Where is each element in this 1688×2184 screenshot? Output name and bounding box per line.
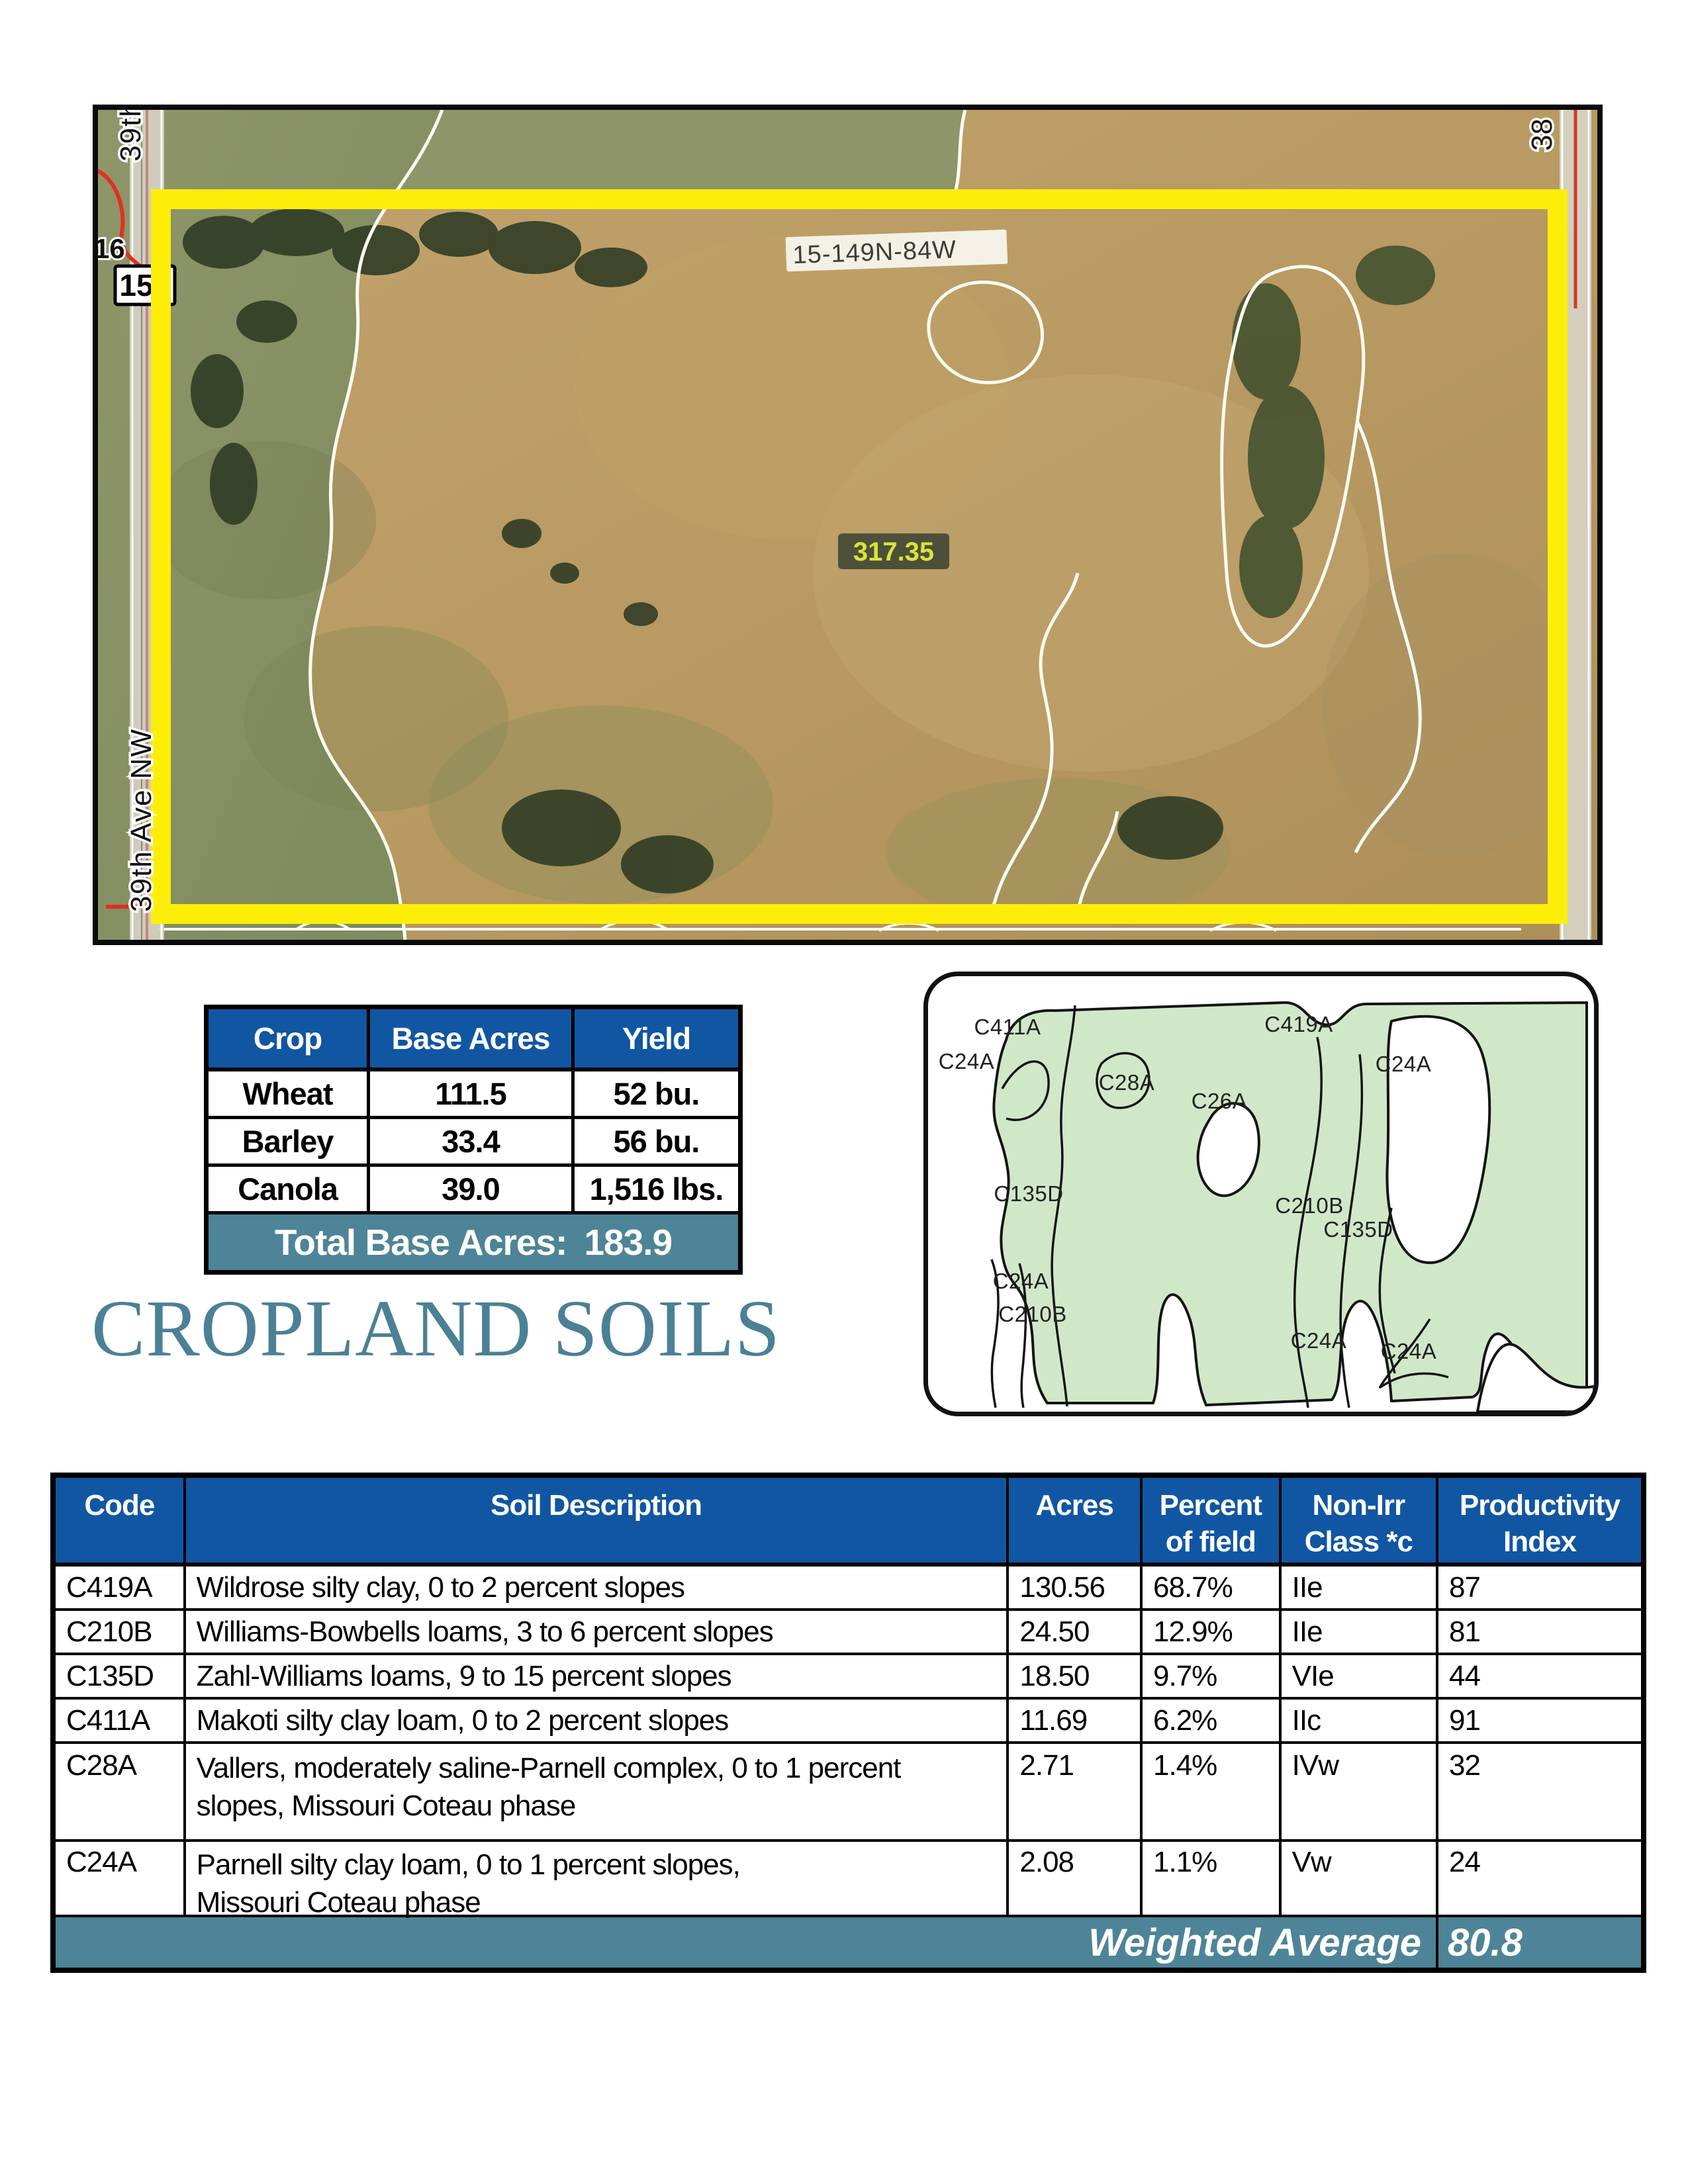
soil-percent: 6.2%: [1143, 1700, 1282, 1741]
acreage-label: 317.35: [853, 537, 934, 567]
soil-code-label: C26A: [1192, 1089, 1248, 1113]
road-number-label: 16: [98, 233, 125, 264]
soil-code: C28A: [56, 1744, 186, 1839]
soil-index: 91: [1438, 1700, 1641, 1741]
soil-class: IIe: [1282, 1611, 1438, 1653]
soils-table: Code Soil Description Acres Percentof fi…: [50, 1473, 1646, 1973]
soil-index: 87: [1438, 1567, 1641, 1608]
total-base-acres-value: 183.9: [584, 1221, 672, 1263]
soil-code-label: C135D: [994, 1181, 1063, 1206]
soil-description: Makoti silty clay loam, 0 to 2 percent s…: [186, 1700, 1009, 1741]
page-title: CROPLAND SOILS: [91, 1283, 780, 1375]
acres-header: Acres: [1009, 1478, 1143, 1563]
crop-name: Canola: [209, 1167, 370, 1211]
soil-index: 81: [1438, 1611, 1641, 1653]
soil-description: Zahl-Williams loams, 9 to 15 percent slo…: [186, 1655, 1009, 1697]
soil-row: C419A Wildrose silty clay, 0 to 2 percen…: [56, 1567, 1641, 1611]
description-header: Soil Description: [186, 1478, 1009, 1563]
soil-code: C419A: [56, 1567, 186, 1608]
crop-table-header: Crop Base Acres Yield: [209, 1009, 738, 1071]
soil-code: C135D: [56, 1655, 186, 1697]
soil-code: C210B: [56, 1611, 186, 1653]
township-label: 15-149N-84W: [792, 236, 957, 269]
aerial-map: 15 16 39th Ave NW 39th 38 15-149N-84W 31…: [93, 105, 1603, 945]
soil-percent: 1.4%: [1143, 1744, 1282, 1839]
soil-code-label: C28A: [1099, 1070, 1155, 1095]
soil-description: Vallers, moderately saline-Parnell compl…: [186, 1744, 1009, 1839]
productivity-header: ProductivityIndex: [1438, 1478, 1641, 1563]
soil-percent: 1.1%: [1143, 1842, 1282, 1915]
total-base-acres-label: Total Base Acres:: [275, 1221, 567, 1263]
soil-index: 44: [1438, 1655, 1641, 1697]
crop-yield: 52 bu.: [575, 1071, 738, 1116]
highway-shield-label: 15: [119, 268, 153, 302]
soil-row: C210B Williams-Bowbells loams, 3 to 6 pe…: [56, 1611, 1641, 1655]
base-acres-header: Base Acres: [370, 1009, 575, 1068]
crop-name: Barley: [209, 1119, 370, 1163]
soil-code-label: C135D: [1323, 1217, 1393, 1242]
soil-code-label: C24A: [1291, 1328, 1347, 1353]
aerial-map-image: 15 16 39th Ave NW 39th 38 15-149N-84W 31…: [98, 110, 1597, 940]
soil-acres: 11.69: [1009, 1700, 1143, 1741]
soil-map: C411A C24A C28A C419A C26A C24A C135D C2…: [923, 972, 1599, 1416]
soil-map-image: C411A C24A C28A C419A C26A C24A C135D C2…: [928, 976, 1594, 1412]
crop-base-acres: 111.5: [370, 1071, 575, 1116]
crop-row: Barley 33.4 56 bu.: [209, 1119, 738, 1167]
soil-index: 24: [1438, 1842, 1641, 1915]
soil-row: C411A Makoti silty clay loam, 0 to 2 per…: [56, 1700, 1641, 1744]
soil-class: Vw: [1282, 1842, 1438, 1915]
soil-acres: 2.71: [1009, 1744, 1143, 1839]
soils-table-header: Code Soil Description Acres Percentof fi…: [56, 1478, 1641, 1567]
crop-name: Wheat: [209, 1071, 370, 1116]
crop-base-acres: 39.0: [370, 1167, 575, 1211]
soil-row: C28A Vallers, moderately saline-Parnell …: [56, 1744, 1641, 1842]
crop-yield: 1,516 lbs.: [575, 1167, 738, 1211]
road-top-left-label: 39th: [115, 110, 147, 161]
soil-acres: 130.56: [1009, 1567, 1143, 1608]
acreage-label-group: 317.35: [838, 533, 949, 569]
soil-code: C24A: [56, 1842, 186, 1915]
weighted-average-row: Weighted Average 80.8: [56, 1917, 1641, 1968]
soil-description: Wildrose silty clay, 0 to 2 percent slop…: [186, 1567, 1009, 1608]
soil-code-label: C24A: [1376, 1052, 1432, 1076]
soil-index: 32: [1438, 1744, 1641, 1839]
soil-code-label: C24A: [1381, 1339, 1437, 1363]
class-header: Non-IrrClass *c: [1282, 1478, 1438, 1563]
soil-code-label: C210B: [1275, 1193, 1343, 1218]
yield-header: Yield: [575, 1009, 738, 1068]
soil-class: IIe: [1282, 1567, 1438, 1608]
weighted-average-value: 80.8: [1438, 1917, 1641, 1968]
road-top-right-label: 38: [1526, 118, 1558, 151]
soil-class: IIc: [1282, 1700, 1438, 1741]
soil-acres: 24.50: [1009, 1611, 1143, 1653]
soil-row: C135D Zahl-Williams loams, 9 to 15 perce…: [56, 1655, 1641, 1700]
crop-header: Crop: [209, 1009, 370, 1068]
soil-acres: 2.08: [1009, 1842, 1143, 1915]
percent-header: Percentof field: [1143, 1478, 1282, 1563]
total-base-acres-row: Total Base Acres: 183.9: [209, 1214, 738, 1270]
road-left-label: 39th Ave NW: [125, 728, 158, 912]
crop-base-acres: 33.4: [370, 1119, 575, 1163]
soil-description: Williams-Bowbells loams, 3 to 6 percent …: [186, 1611, 1009, 1653]
soil-percent: 12.9%: [1143, 1611, 1282, 1653]
soil-percent: 68.7%: [1143, 1567, 1282, 1608]
code-header: Code: [56, 1478, 186, 1563]
crop-row: Canola 39.0 1,516 lbs.: [209, 1167, 738, 1214]
soil-code: C411A: [56, 1700, 186, 1741]
soil-row: C24A Parnell silty clay loam, 0 to 1 per…: [56, 1842, 1641, 1917]
crop-row: Wheat 111.5 52 bu.: [209, 1071, 738, 1119]
soil-code-label: C210B: [998, 1302, 1066, 1326]
weighted-average-label: Weighted Average: [56, 1917, 1438, 1968]
soil-class: IVw: [1282, 1744, 1438, 1839]
crop-table: Crop Base Acres Yield Wheat 111.5 52 bu.…: [204, 1005, 743, 1275]
document-page: 15 16 39th Ave NW 39th 38 15-149N-84W 31…: [0, 0, 1688, 2184]
soil-code-label: C419A: [1264, 1012, 1333, 1036]
soil-code-label: C411A: [974, 1015, 1041, 1039]
soil-acres: 18.50: [1009, 1655, 1143, 1697]
soil-code-label: C24A: [939, 1049, 995, 1073]
crop-yield: 56 bu.: [575, 1119, 738, 1163]
soil-description: Parnell silty clay loam, 0 to 1 percent …: [186, 1842, 1009, 1915]
soil-class: VIe: [1282, 1655, 1438, 1697]
soil-code-label: C24A: [993, 1269, 1049, 1293]
soil-percent: 9.7%: [1143, 1655, 1282, 1697]
